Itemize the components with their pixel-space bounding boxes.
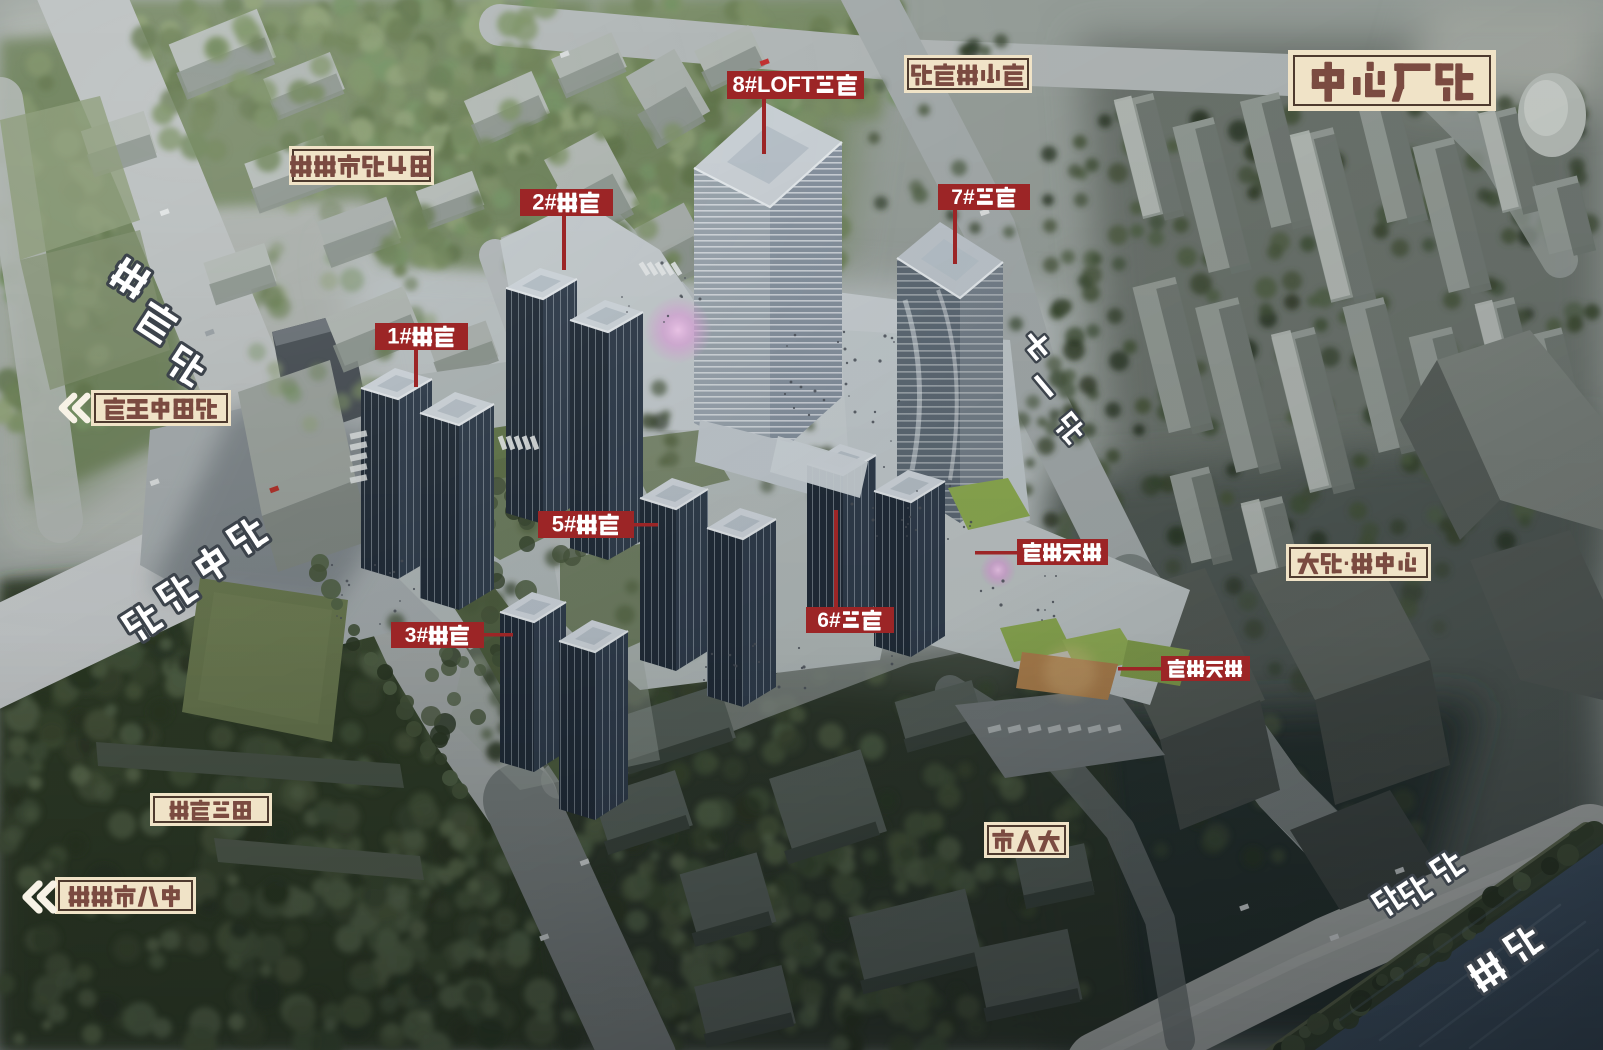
svg-text:1#: 1# (387, 324, 411, 349)
svg-text:2#: 2# (532, 190, 556, 215)
svg-text:·: · (1343, 550, 1351, 576)
svg-text:7#: 7# (951, 186, 975, 209)
svg-text:8#LOFT: 8#LOFT (733, 72, 815, 97)
svg-text:5#: 5# (552, 512, 576, 537)
svg-text:6#: 6# (817, 609, 841, 632)
svg-text:3#: 3# (405, 624, 429, 647)
